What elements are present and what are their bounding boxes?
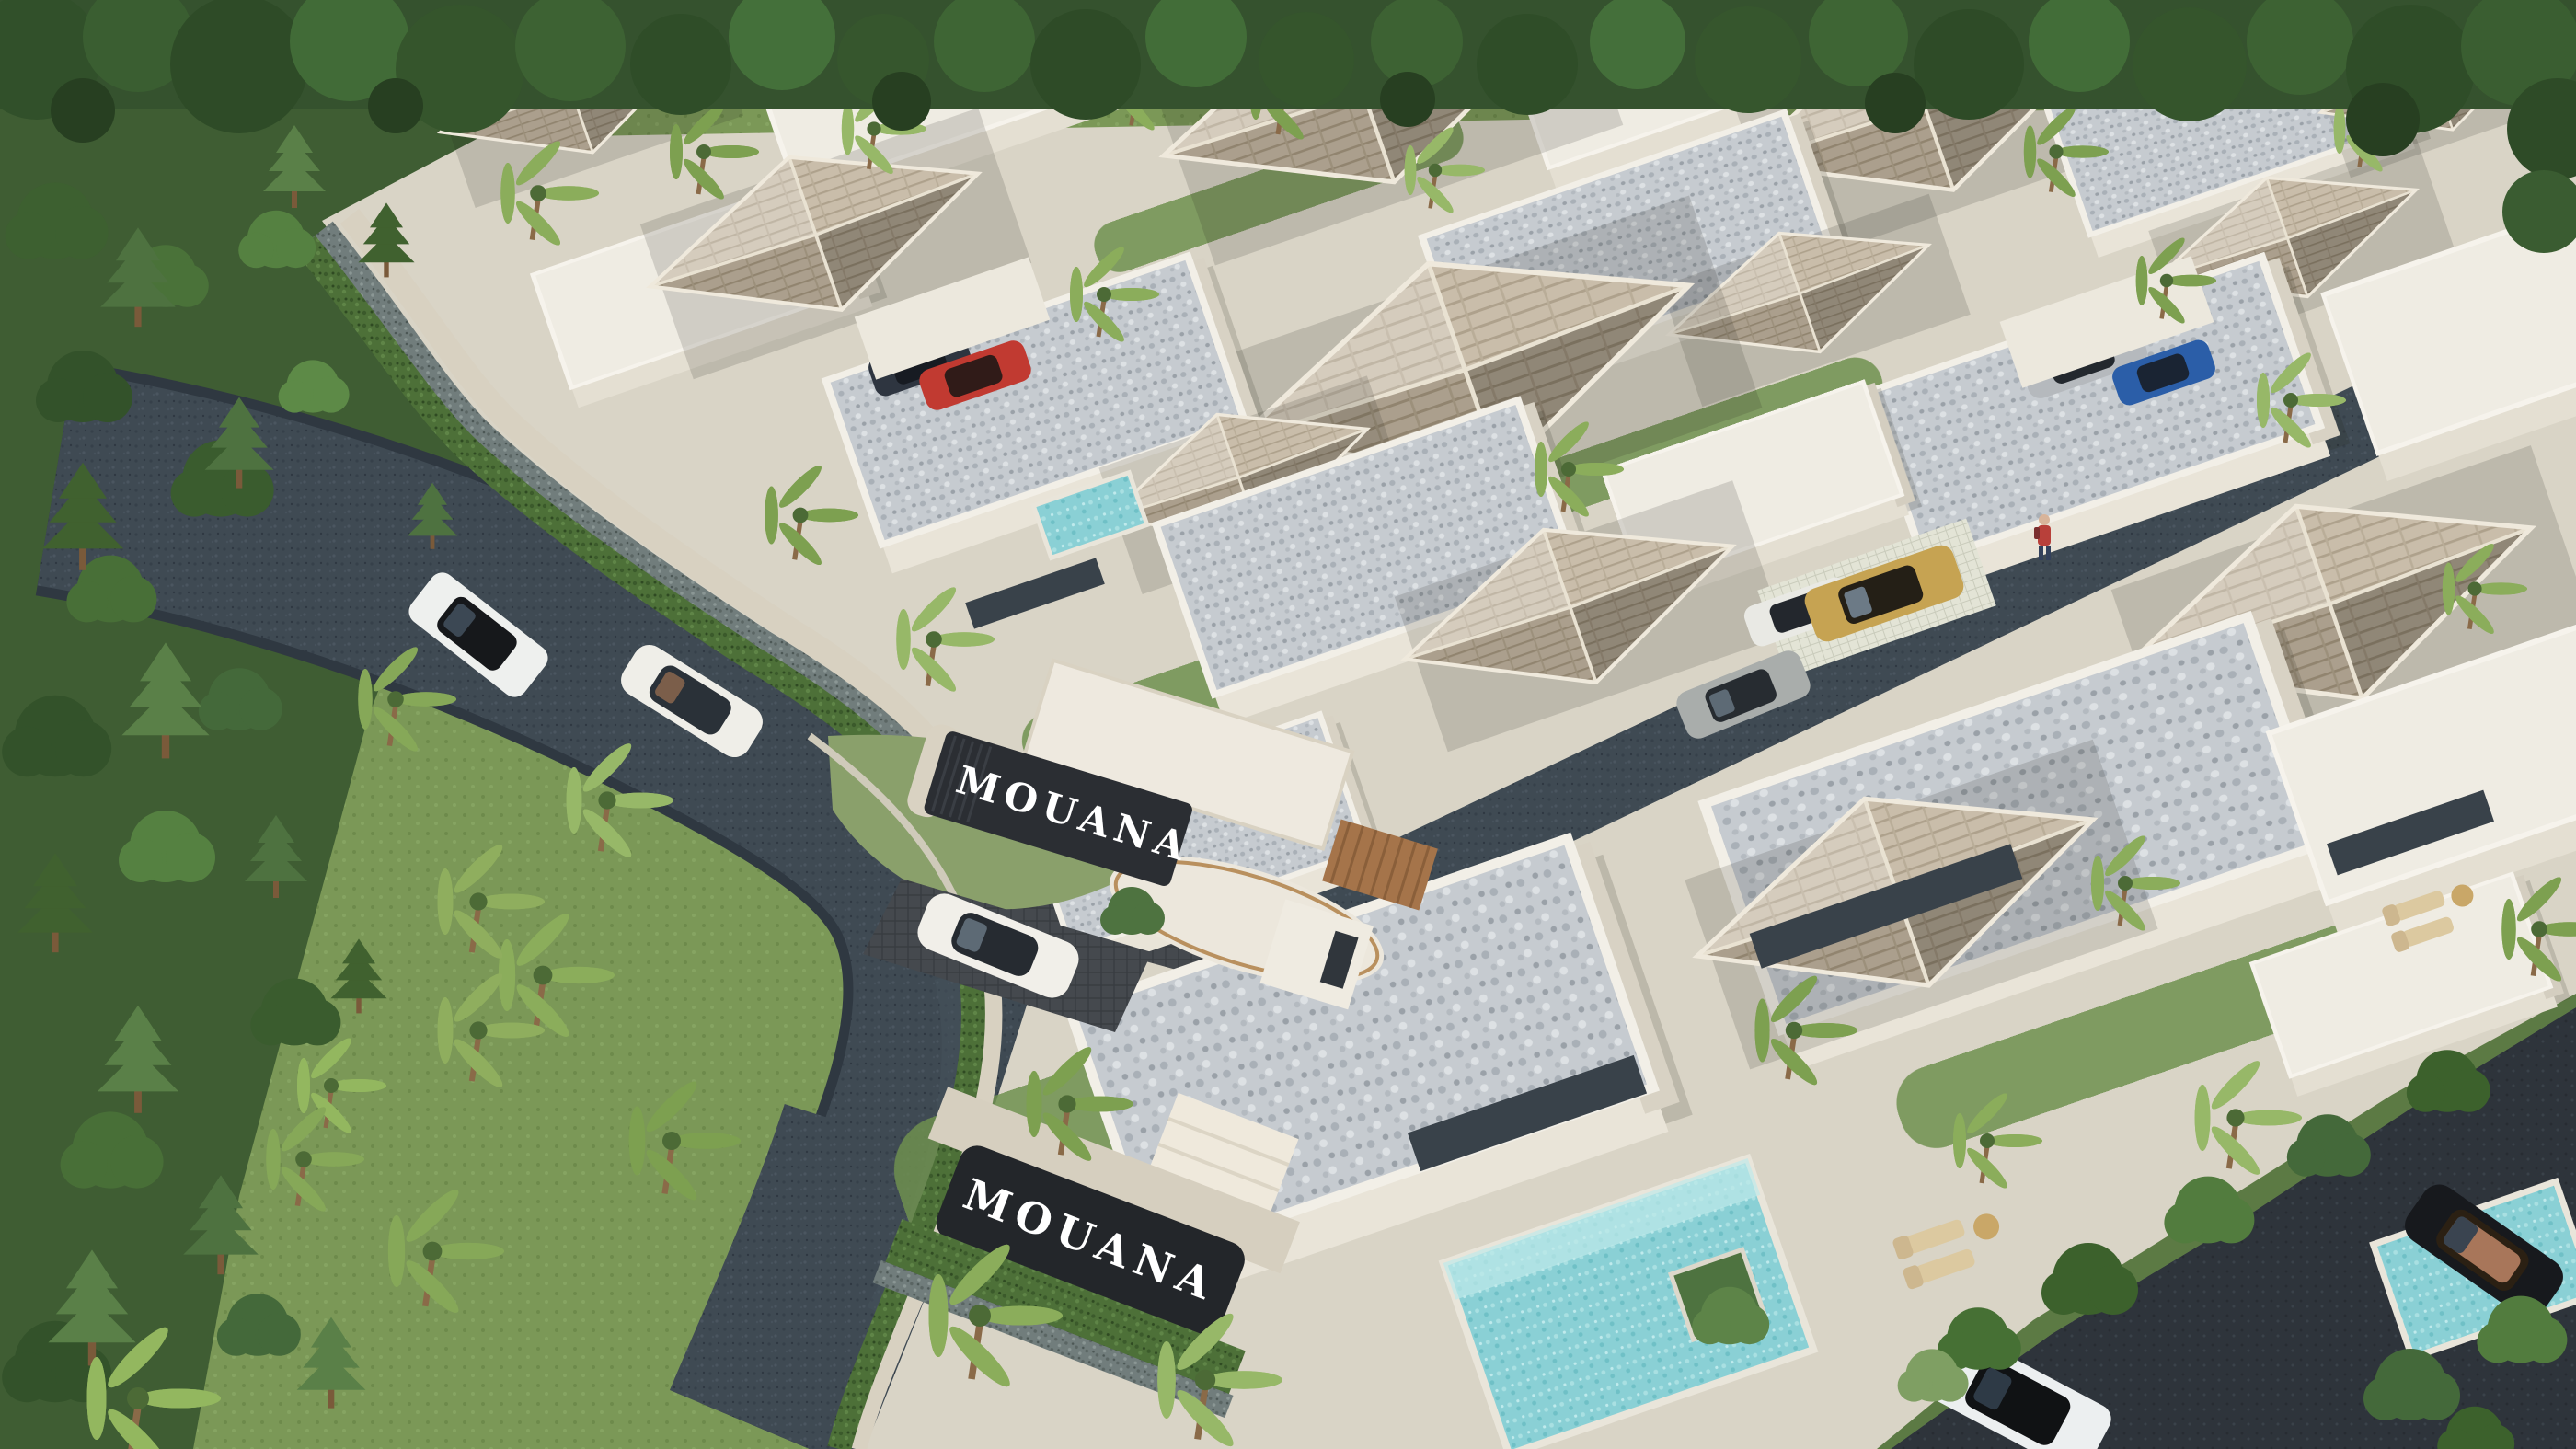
aerial-render-canvas: MOUANA MOUANA bbox=[0, 0, 2576, 1449]
